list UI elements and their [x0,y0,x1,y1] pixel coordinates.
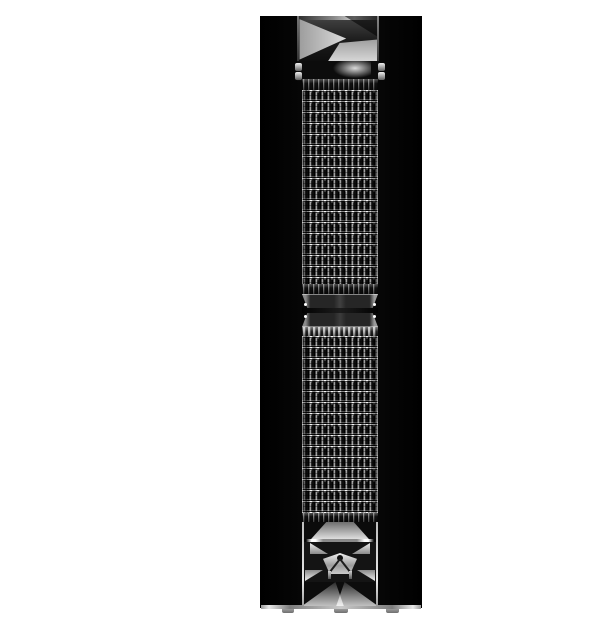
deployment-clasp [302,542,378,582]
spring-bar-connector [297,61,379,81]
clasp-tongue-highlight [302,522,378,539]
clasp-chamfer [305,570,323,581]
clasp-chamfer [352,543,370,554]
spring-bar-end [295,72,302,80]
pillar-foot [386,609,399,613]
clasp-fold-over [302,522,378,539]
mesh-segment-lower [302,336,378,513]
rib-fringe-junction-top [302,284,378,294]
lug-right-edge [377,16,379,61]
clasp-hinge-tick [349,571,352,579]
rib-fringe-top [302,79,378,90]
connector-reflection [331,61,371,79]
junction-pin [304,303,307,306]
clasp-side-edge [302,522,304,606]
junction-pin [373,315,376,318]
spring-bar-end [378,63,385,71]
pillar-foot [282,609,294,613]
junction-pin [304,315,307,318]
v-highlight-right [336,582,378,606]
spring-bar-end [295,63,302,71]
mesh-segment-upper [302,90,378,284]
clasp-lower-face [302,582,378,606]
product-photo [40,16,600,616]
spring-bar-end [378,72,385,80]
junction-pin [373,303,376,306]
lug-adapter [297,16,379,61]
lug-left-edge [297,16,299,61]
clasp-chamfer [310,543,328,554]
clasp-hinge-tick [328,571,331,579]
junction-start-bar [302,313,378,327]
rib-fringe-bottom [302,513,378,522]
junction-gap [302,308,378,313]
clasp-chamfer [357,570,375,581]
pillar-foot [334,609,348,613]
junction-end-bar [302,294,378,308]
rib-fringe-junction-bottom [302,327,378,336]
clasp-side-edge [376,522,378,606]
